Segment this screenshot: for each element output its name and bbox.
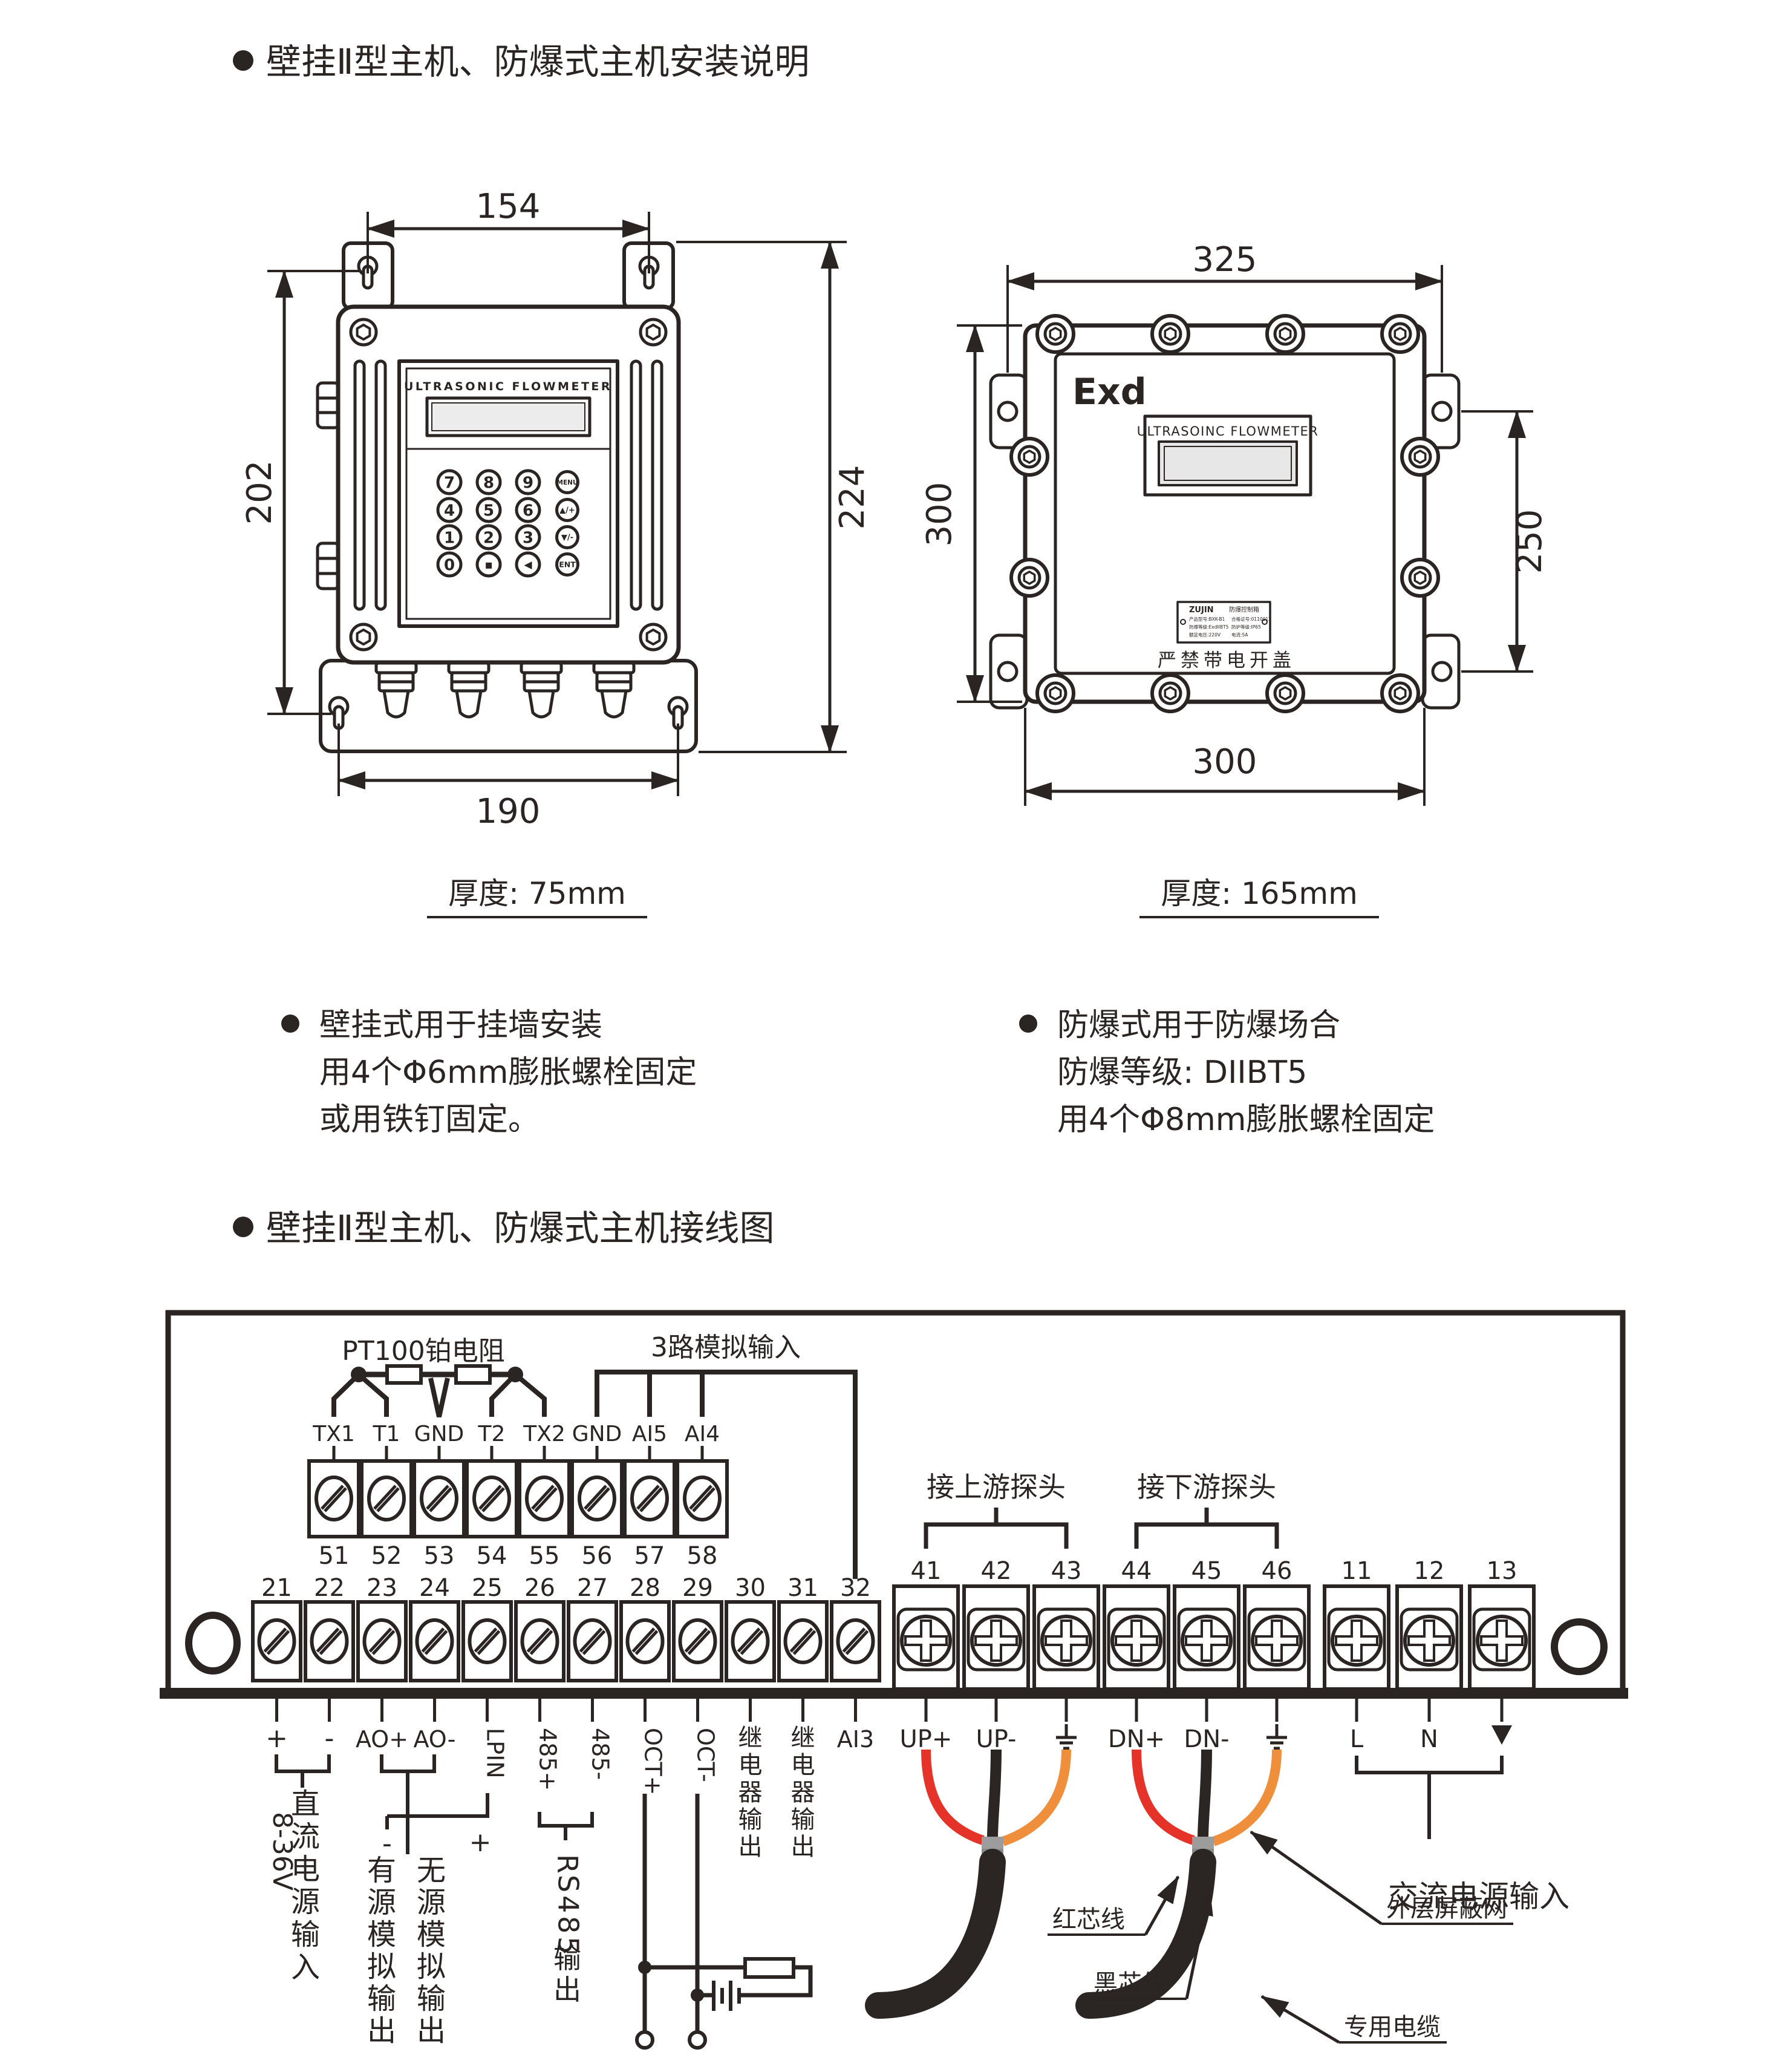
red-wire-label: 红芯线 xyxy=(1052,1906,1125,1933)
device-brand-label: ULTRASOINC FLOWMETER xyxy=(1137,424,1319,439)
black-wire-label: 黑芯线 xyxy=(1094,1970,1166,1998)
terminal-signal-label: TX2 xyxy=(523,1422,566,1446)
terminal-number: 44 xyxy=(1121,1557,1152,1585)
passive-analog-out-label: 无源模拟输出 xyxy=(417,1854,446,2048)
terminal-signal-label: UP- xyxy=(976,1725,1017,1753)
terminal-55: TX255 xyxy=(520,1422,569,1570)
terminal-24: 24AO- xyxy=(411,1574,458,1753)
terminal-32: 32AI3 xyxy=(832,1574,879,1753)
slot-screw-icon xyxy=(470,1620,505,1662)
slot-screw-icon xyxy=(316,1477,351,1520)
rs485-out-label: RS485输出 xyxy=(551,1854,584,2006)
terminal-number: 43 xyxy=(1051,1557,1082,1585)
cable-ferrule xyxy=(982,1837,1003,1849)
terminal-52: T152 xyxy=(362,1422,411,1570)
slot-screw-icon xyxy=(523,1620,558,1662)
shield-wire xyxy=(1213,1750,1277,1842)
slot-screw-icon xyxy=(312,1620,347,1662)
terminal-number: 53 xyxy=(424,1542,455,1570)
terminal-number: 46 xyxy=(1262,1557,1292,1585)
terminal-signal-label: LPIN xyxy=(482,1728,509,1779)
nameplate-brand: ZUJIN xyxy=(1189,606,1214,615)
manual-page: 壁挂Ⅱ型主机、防爆式主机安装说明 xyxy=(0,0,1783,2070)
terminal-13: 13 xyxy=(1470,1557,1534,1745)
terminal-41: 41UP+ xyxy=(894,1557,958,1753)
terminal-number: 11 xyxy=(1341,1557,1372,1585)
terminal-46: 46 xyxy=(1245,1557,1309,1748)
bullet-icon xyxy=(1019,1015,1037,1033)
key-label: ▲/+ xyxy=(559,506,575,515)
terminal-number: 31 xyxy=(787,1574,818,1602)
terminal-signal-label: TX1 xyxy=(312,1422,355,1446)
key-label: ▪ xyxy=(484,557,493,572)
terminal-signal-label: OCT+ xyxy=(640,1728,667,1796)
terminal-number: 22 xyxy=(314,1574,345,1602)
note-right-3: 用4个Φ8mm膨胀螺栓固定 xyxy=(1057,1102,1435,1138)
dim-left: 202 xyxy=(240,460,279,525)
section2-title: 壁挂Ⅱ型主机、防爆式主机接线图 xyxy=(266,1208,775,1249)
terminal-number: 57 xyxy=(634,1542,665,1570)
bullet-icon xyxy=(233,1217,253,1237)
terminal-57: AI557 xyxy=(625,1422,674,1570)
slot-screw-icon xyxy=(685,1477,720,1520)
section1-title: 壁挂Ⅱ型主机、防爆式主机安装说明 xyxy=(266,41,810,82)
slot-screw-icon xyxy=(369,1477,404,1520)
terminal-number: 21 xyxy=(261,1574,292,1602)
probe-cable xyxy=(878,1862,993,2005)
terminal-number: 42 xyxy=(981,1557,1012,1585)
terminal-42: 42UP- xyxy=(964,1557,1028,1753)
slot-screw-icon xyxy=(733,1620,768,1662)
cable-ferrule xyxy=(1192,1837,1214,1849)
note-right-2: 防爆等级: DIIBT5 xyxy=(1057,1054,1307,1091)
terminal-number: 51 xyxy=(319,1542,350,1570)
terminal-signal-label: 485- xyxy=(587,1728,614,1780)
mounting-hole-icon xyxy=(189,1615,237,1671)
key-label: 0 xyxy=(444,556,455,574)
terminal-number: 23 xyxy=(367,1574,397,1602)
note-left-2: 用4个Φ6mm膨胀螺栓固定 xyxy=(319,1054,697,1091)
terminal-signal-label: DN+ xyxy=(1108,1725,1165,1753)
terminal-signal-label: AO+ xyxy=(356,1726,408,1753)
slot-screw-icon xyxy=(527,1477,562,1520)
key-label: 1 xyxy=(444,529,455,547)
terminal-number: 54 xyxy=(477,1542,507,1570)
device-brand-label: ULTRASONIC FLOWMETER xyxy=(404,380,612,393)
terminal-12: 12N xyxy=(1397,1557,1461,1753)
terminal-signal-label: 继电器输出 xyxy=(791,1724,815,1861)
dim-right: 250 xyxy=(1510,509,1550,574)
key-label: 8 xyxy=(483,474,494,492)
slot-screw-icon xyxy=(365,1620,400,1662)
terminal-number: 45 xyxy=(1191,1557,1222,1585)
active-analog-out-label: 有源模拟输出 xyxy=(367,1854,396,2048)
slot-screw-icon xyxy=(474,1477,509,1520)
terminal-signal-label: GND xyxy=(414,1422,464,1446)
nameplate-text: 合格证号:0110013 xyxy=(1231,616,1271,622)
terminal-43: 43 xyxy=(1034,1557,1098,1748)
terminal-signal-label: + xyxy=(266,1723,288,1754)
black-core-wire xyxy=(993,1750,996,1839)
shield-wire xyxy=(1003,1750,1066,1842)
terminal-number: 12 xyxy=(1414,1557,1445,1585)
resistor-icon xyxy=(387,1366,421,1383)
terminal-56: GND56 xyxy=(572,1422,622,1570)
terminal-number: 25 xyxy=(472,1574,503,1602)
terminal-45: 45DN- xyxy=(1175,1557,1239,1753)
terminal-number: 30 xyxy=(735,1574,766,1602)
nameplate-text: 产品型号:BXK-B1 xyxy=(1189,616,1225,622)
terminal-signal-label: AO- xyxy=(413,1726,455,1753)
terminal-signal-label: OCT- xyxy=(693,1728,719,1782)
terminal-signal-label: - xyxy=(325,1723,334,1754)
terminal-number: 29 xyxy=(682,1574,713,1602)
earth-ground-icon xyxy=(1056,1724,1077,1748)
resistor-icon xyxy=(745,1959,794,1977)
probe-cables xyxy=(878,1750,1277,2005)
terminal-22: 22- xyxy=(305,1574,353,1754)
terminal-54: T254 xyxy=(467,1422,517,1570)
terminal-27: 27485- xyxy=(569,1574,616,1780)
terminal-26: 26485+ xyxy=(516,1574,564,1791)
thickness-left: 厚度: 75mm xyxy=(448,876,626,911)
dim-left: 300 xyxy=(920,482,959,547)
nameplate: ZUJIN 防爆控制箱 产品型号:BXK-B1合格证号:0110013防爆等级:… xyxy=(1178,602,1271,642)
terminal-28: 28OCT+ xyxy=(621,1574,669,1796)
terminal-30: 30继电器输出 xyxy=(726,1574,774,1861)
oct-circuit xyxy=(637,1794,810,2048)
probe-brackets xyxy=(926,1508,1277,1549)
terminal-11: 11L xyxy=(1325,1557,1389,1753)
dc-bracket xyxy=(276,1754,329,1788)
red-core-wire xyxy=(1136,1750,1193,1840)
key-label: 4 xyxy=(444,502,455,520)
terminal-signal-label: T1 xyxy=(373,1422,400,1446)
hex-screw-icon xyxy=(351,624,376,650)
note-left-1: 壁挂式用于挂墙安装 xyxy=(319,1007,602,1044)
key-label: 2 xyxy=(483,529,494,547)
terminal-number: 32 xyxy=(840,1574,871,1602)
terminal-number: 26 xyxy=(524,1574,555,1602)
nameplate-text: 额定电压:220V xyxy=(1189,632,1221,638)
analog-label: 3路模拟输入 xyxy=(651,1332,801,1363)
black-core-wire xyxy=(1203,1750,1207,1839)
lcd-screen xyxy=(1159,442,1297,485)
slot-screw-icon xyxy=(422,1477,457,1520)
downstream-probe-label: 接下游探头 xyxy=(1137,1471,1276,1503)
terminal-number: 56 xyxy=(582,1542,613,1570)
terminal-signal-label: GND xyxy=(572,1422,622,1446)
slot-screw-icon xyxy=(680,1620,715,1662)
bullet-icon xyxy=(233,50,253,71)
red-core-wire xyxy=(926,1750,983,1840)
key-label: 5 xyxy=(483,502,494,520)
dim-bottom: 190 xyxy=(476,792,541,831)
key-label: ▼/- xyxy=(561,534,573,543)
upper-terminal-row: TX151T152GND53T254TX255GND56AI557AI458 xyxy=(309,1422,727,1570)
ac-bracket xyxy=(1357,1756,1502,1839)
key-label: 6 xyxy=(523,502,533,520)
nameplate-text: 防护等级:IP65 xyxy=(1231,624,1261,630)
dim-top: 154 xyxy=(476,187,541,226)
terminal-signal-label: AI5 xyxy=(632,1422,667,1446)
nameplate-text: 防爆等级:ExdIIBT5 xyxy=(1189,624,1229,630)
lcd-screen xyxy=(432,403,585,431)
terminal-53: GND53 xyxy=(414,1422,464,1570)
slot-screw-icon xyxy=(838,1620,873,1662)
bullet-icon xyxy=(281,1015,299,1033)
terminal-signal-label: UP+ xyxy=(900,1725,953,1753)
terminal-signal-label: 485+ xyxy=(535,1728,561,1791)
slot-screw-icon xyxy=(632,1477,667,1520)
key-label: 7 xyxy=(444,474,455,492)
passive-plus: + xyxy=(469,1827,492,1858)
phase-marker-icon xyxy=(1491,1725,1512,1745)
terminal-51: TX151 xyxy=(309,1422,359,1570)
nameplate-title: 防爆控制箱 xyxy=(1229,606,1259,613)
slot-screw-icon xyxy=(786,1620,821,1662)
hex-screw-icon xyxy=(641,624,666,650)
hex-screw-icon xyxy=(351,319,376,345)
terminal-number: 52 xyxy=(371,1542,402,1570)
slot-screw-icon xyxy=(575,1620,610,1662)
wall-mount-device-drawing: ULTRASONIC FLOWMETER 789MENU456▲/+123▼/-… xyxy=(318,243,696,751)
slot-screw-icon xyxy=(628,1620,663,1662)
rs485-bracket xyxy=(539,1812,592,1840)
terminal-29: 29OCT- xyxy=(674,1574,722,1782)
key-label: ENT xyxy=(559,560,576,569)
terminal-23: 23AO+ xyxy=(356,1574,408,1753)
resistor-icon xyxy=(456,1366,490,1383)
mounting-hole-icon xyxy=(1554,1622,1604,1672)
lower-terminal-row: 21+22-23AO+24AO-25LPIN26485+27485-28OCT+… xyxy=(253,1574,879,1861)
dim-top: 325 xyxy=(1193,240,1257,279)
shield-label: 外层屏蔽网 xyxy=(1386,1895,1507,1923)
warning-text: 严禁带电开盖 xyxy=(1158,650,1296,672)
terminal-signal-label: N xyxy=(1420,1725,1438,1753)
dc-input-label: 直流电源输入 xyxy=(291,1787,320,1984)
terminal-44: 44DN+ xyxy=(1104,1557,1169,1753)
thickness-right: 厚度: 165mm xyxy=(1161,876,1358,911)
terminal-number: 28 xyxy=(630,1574,660,1602)
terminal-signal-label: L xyxy=(1350,1725,1364,1753)
terminal-number: 13 xyxy=(1487,1557,1517,1585)
technical-drawing: 壁挂Ⅱ型主机、防爆式主机安装说明 xyxy=(0,0,1783,2070)
upstream-probe-label: 接上游探头 xyxy=(927,1471,1066,1503)
key-label: ◀ xyxy=(524,559,532,571)
terminal-signal-label: DN- xyxy=(1184,1725,1229,1753)
key-label: 3 xyxy=(523,529,533,547)
terminal-21: 21+ xyxy=(253,1574,301,1754)
explosion-proof-device-drawing: Exd ULTRASOINC FLOWMETER ZUJIN 防爆控制箱 产品型… xyxy=(991,316,1459,711)
terminal-signal-label: T2 xyxy=(478,1422,506,1446)
terminal-58: AI458 xyxy=(677,1422,727,1570)
wiring-diagram: PT100铂电阻 3路模拟输入 TX151T152GND53T254TX255G… xyxy=(160,1313,1628,2048)
terminal-number: 27 xyxy=(577,1574,608,1602)
terminal-number: 41 xyxy=(911,1557,942,1585)
terminal-number: 24 xyxy=(419,1574,450,1602)
note-right-1: 防爆式用于防爆场合 xyxy=(1057,1007,1340,1044)
dim-right: 224 xyxy=(833,465,872,530)
terminal-signal-label: 继电器输出 xyxy=(738,1724,763,1861)
probe-power-terminal-row: 41UP+42UP-4344DN+45DN-4611L12N13 xyxy=(894,1557,1534,1753)
exd-marking: Exd xyxy=(1072,371,1147,413)
hex-screw-icon xyxy=(641,319,666,345)
slot-screw-icon xyxy=(259,1620,295,1662)
slot-screw-icon xyxy=(579,1477,614,1520)
nameplate-text: 电流:5A xyxy=(1231,632,1248,638)
cable-label: 专用电缆 xyxy=(1344,2013,1441,2041)
terminal-signal-label: AI3 xyxy=(837,1726,874,1753)
dim-bottom: 300 xyxy=(1193,742,1257,782)
key-label: MENU xyxy=(557,479,578,486)
key-label: 9 xyxy=(523,474,533,492)
pt100-label: PT100铂电阻 xyxy=(342,1336,504,1367)
earth-ground-icon xyxy=(1266,1724,1287,1748)
note-left-3: 或用铁钉固定。 xyxy=(319,1102,539,1138)
terminal-number: 55 xyxy=(529,1542,560,1570)
terminal-25: 25LPIN xyxy=(463,1574,511,1779)
terminal-signal-label: AI4 xyxy=(685,1422,720,1446)
terminal-number: 58 xyxy=(687,1542,718,1570)
slot-screw-icon xyxy=(417,1620,452,1662)
terminal-31: 31继电器输出 xyxy=(779,1574,827,1861)
